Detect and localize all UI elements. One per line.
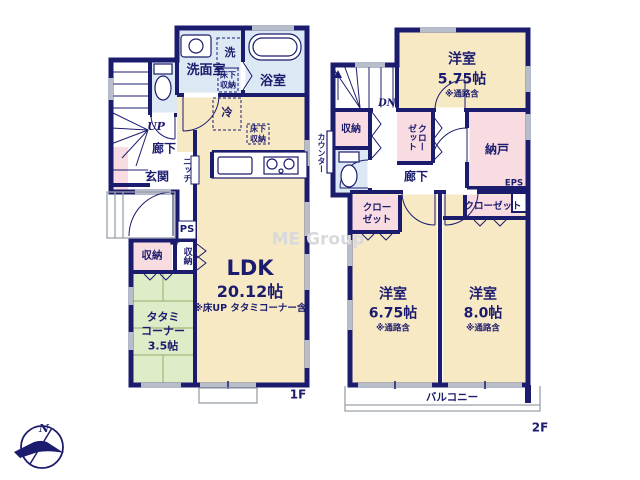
watermark: ME Group	[272, 229, 365, 250]
bedroom2-note-label: ※通路含	[376, 324, 410, 335]
entrance-label: 玄関	[145, 170, 169, 185]
bedroom2-name-label: 洋室	[379, 286, 407, 304]
closet1-label: クローゼット	[405, 121, 425, 153]
ldk-name-label: LDK	[226, 255, 273, 281]
bedroom3-size-label: 8.0帖	[464, 305, 503, 323]
storage-room-label: 納戸	[485, 143, 509, 158]
counter-2f	[327, 131, 333, 173]
closet3-label: クローゼット	[464, 201, 521, 213]
balcony-wall-stub	[525, 385, 531, 403]
terrace-1f	[199, 388, 257, 403]
counter-label: カウンター	[316, 133, 326, 173]
bedroom1-size-label: 5.75帖	[438, 71, 487, 89]
storage-a-label: 収納	[142, 249, 163, 262]
floor1-label: 1F	[290, 388, 307, 403]
toilet-1f-bowl	[155, 76, 171, 100]
stairs-up-label: UP	[147, 120, 165, 134]
storage-b-label: 収納	[180, 247, 191, 265]
washer-label: 洗	[225, 46, 236, 60]
bedroom2-size-label: 6.75帖	[369, 305, 418, 323]
closet2-label: クローゼット	[363, 203, 392, 228]
balcony-label: バルコニー	[426, 391, 478, 404]
niche-label: ニッチ	[181, 157, 192, 183]
compass-north-label: N	[39, 422, 49, 436]
eps-label: EPS	[505, 179, 523, 190]
toilet-1f-tank	[154, 64, 172, 74]
bathroom-label: 浴室	[260, 74, 286, 90]
ldk-note-label: ※床UP タタミコーナー含	[194, 303, 307, 315]
stairs-down-label: DN	[378, 98, 396, 111]
pipe-space-label: PS	[180, 224, 195, 237]
toilet-2f-tank	[339, 152, 359, 162]
floorplan-page: ME Group 洗面室 洗 床下収納 浴室 冷 床下収納 UP 廊下 玄関 ニ…	[0, 0, 640, 480]
bedroom3-name-label: 洋室	[469, 286, 497, 304]
underfloor-storage-1-label: 床下収納	[220, 70, 236, 89]
fridge-label: 冷	[222, 106, 233, 120]
underfloor-storage-2-label: 床下収納	[250, 124, 266, 143]
ldk-size-label: 20.12帖	[217, 282, 284, 302]
niche-recess	[191, 156, 199, 184]
pillar	[171, 238, 177, 244]
bedroom1-name-label: 洋室	[448, 51, 476, 69]
bedroom3-note-label: ※通路含	[466, 324, 500, 335]
floor2-label: 2F	[532, 421, 549, 436]
bedroom1-note-label: ※通路含	[445, 90, 479, 101]
tatami-label: タタミコーナー3.5帖	[141, 311, 185, 354]
storage-2f-label: 収納	[341, 124, 361, 137]
hallway-2f-label: 廊下	[404, 170, 428, 185]
toilet-2f-bowl	[341, 165, 357, 187]
hallway-1f-label: 廊下	[152, 142, 176, 157]
kitchen-sink	[218, 157, 252, 174]
